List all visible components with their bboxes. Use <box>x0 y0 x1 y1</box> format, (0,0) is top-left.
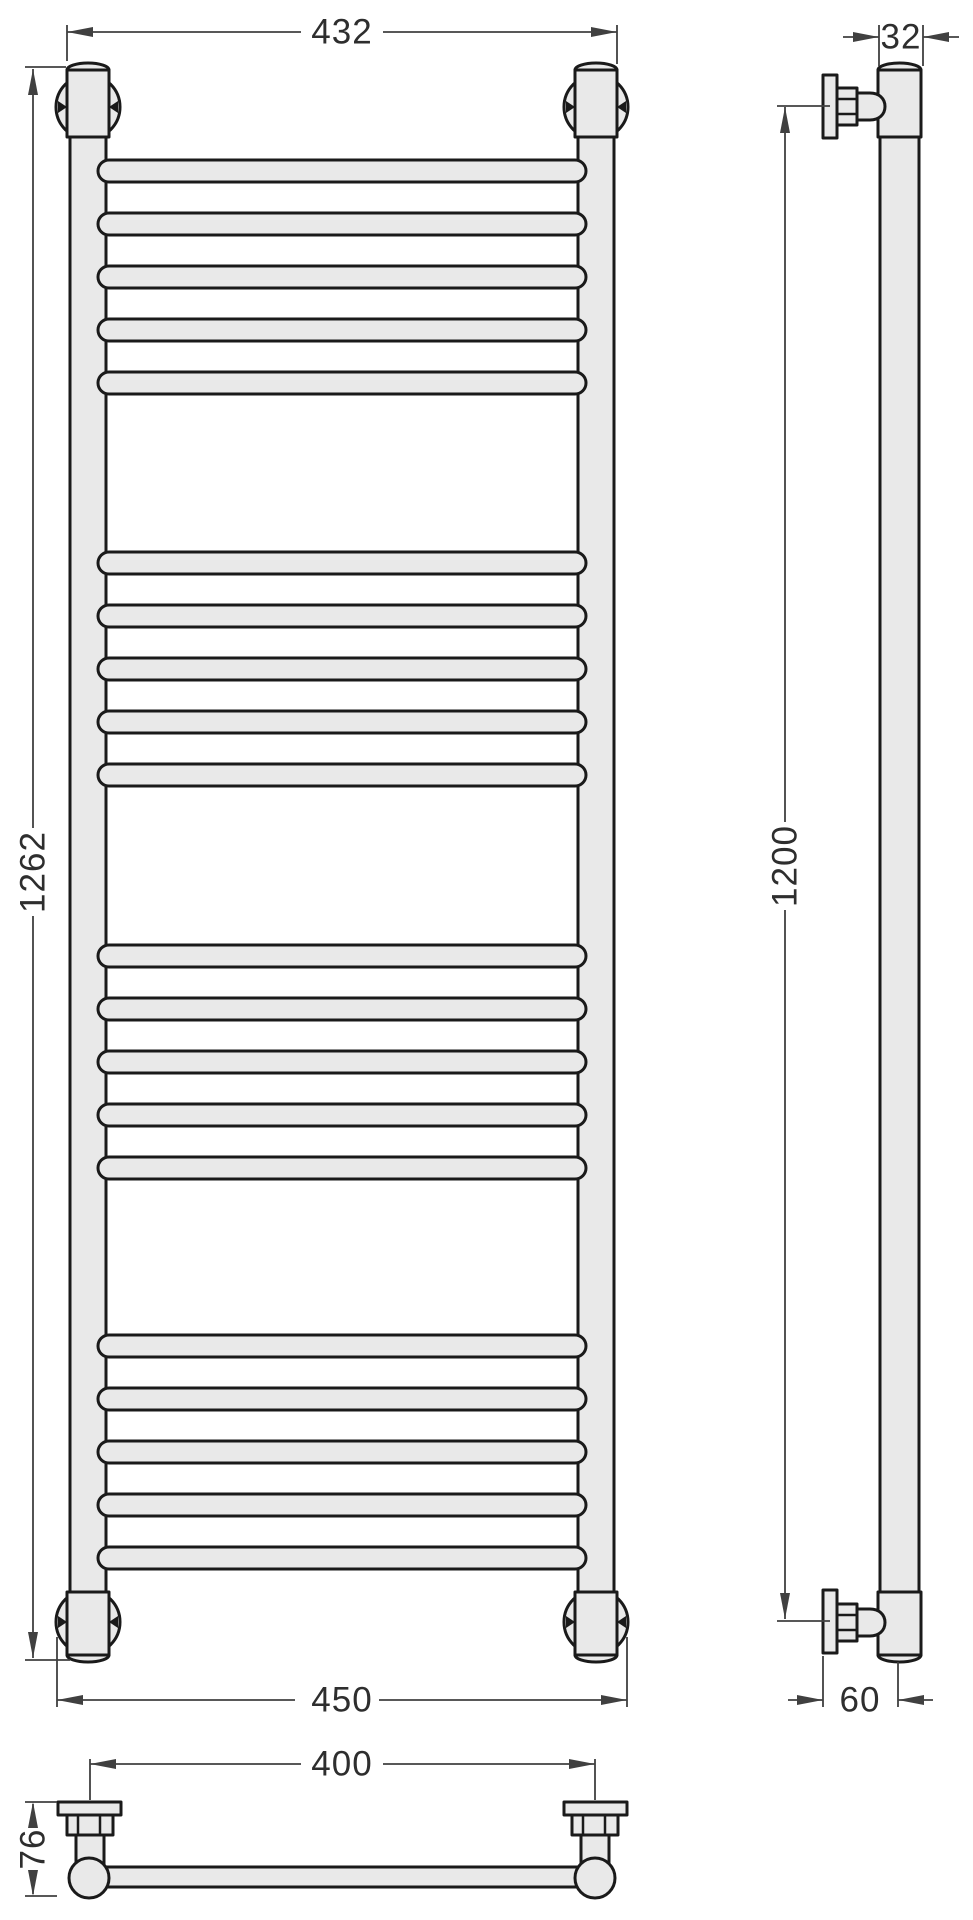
right-rail <box>575 63 617 1662</box>
dim-label-bottom-mount-spacing: 400 <box>311 1745 372 1784</box>
towel-rail-rung <box>98 1157 586 1179</box>
towel-rail-rung <box>98 1494 586 1516</box>
towel-rail-rung <box>98 1104 586 1126</box>
left-rail-top-collar <box>67 70 109 137</box>
arrow-down-icon <box>28 1632 38 1658</box>
left-rail <box>67 63 109 1662</box>
arrow-right-icon <box>601 1695 627 1705</box>
towel-rail-rung <box>98 945 586 967</box>
side-tube <box>878 63 921 1662</box>
arrow-down-icon <box>28 1870 38 1896</box>
towel-rail-rung <box>98 764 586 786</box>
plan-tube-end-left <box>69 1858 109 1898</box>
arrow-left-icon <box>67 27 93 37</box>
front-view <box>56 63 628 1662</box>
arrow-left-icon <box>57 1695 83 1705</box>
towel-rail-rung <box>98 1547 586 1569</box>
towel-rail-rung <box>98 372 586 394</box>
dim-label-front-width-top: 432 <box>311 13 372 52</box>
dim-label-side-mount-height: 1200 <box>766 825 805 907</box>
arrow-left-icon <box>898 1695 924 1705</box>
arrow-up-icon <box>28 1802 38 1828</box>
rung-group-4 <box>98 1335 586 1569</box>
left-rail-tube <box>70 137 106 1592</box>
plan-hex-nut-left <box>67 1815 113 1835</box>
towel-rail-rung <box>98 1051 586 1073</box>
dim-label-front-width-bottom: 450 <box>311 1681 372 1720</box>
plan-tube-end-right <box>575 1858 615 1898</box>
towel-rail-rung <box>98 319 586 341</box>
bracket-hex-nut <box>837 88 857 125</box>
arrow-right-icon <box>591 27 617 37</box>
towel-rail-rung <box>98 213 586 235</box>
dimension-side-mount-height: 1200 <box>766 106 831 1621</box>
arrow-left-icon <box>90 1759 116 1769</box>
towel-rail-rung <box>98 266 586 288</box>
side-view <box>823 63 921 1662</box>
bracket-stem <box>857 1609 885 1636</box>
right-rail-top-collar <box>575 70 617 137</box>
towel-rail-rung <box>98 658 586 680</box>
wall-bracket-bottom <box>823 1590 885 1653</box>
dimension-front-width-top: 432 <box>67 13 617 65</box>
dimension-bottom-depth: 76 <box>14 1802 58 1896</box>
towel-rail-rung <box>98 605 586 627</box>
towel-rail-rung <box>98 1441 586 1463</box>
bracket-stem <box>857 93 885 120</box>
plan-flange-right <box>564 1802 627 1815</box>
towel-rail-rung <box>98 1388 586 1410</box>
dimension-front-width-bottom: 450 <box>57 1637 627 1720</box>
rung-group-2 <box>98 552 586 786</box>
bottom-view <box>58 1802 627 1898</box>
side-tube-body <box>880 137 919 1592</box>
arrow-right-icon <box>797 1695 823 1705</box>
dimension-side-tube-diameter: 32 <box>843 18 959 67</box>
left-rail-bottom-collar <box>67 1592 109 1655</box>
towel-rail-rung <box>98 552 586 574</box>
arrow-up-icon <box>28 69 38 95</box>
rung-group-3 <box>98 945 586 1179</box>
towel-rail-drawing: 432 1262 450 32 <box>0 0 973 1920</box>
towel-rail-rung <box>98 1335 586 1357</box>
arrow-up-icon <box>780 107 790 133</box>
dim-label-bottom-depth: 76 <box>14 1829 53 1870</box>
dimension-front-height: 1262 <box>14 67 71 1660</box>
arrow-right-icon <box>853 32 879 42</box>
wall-bracket-top <box>823 75 885 138</box>
rung-group-1 <box>98 160 586 394</box>
arrow-left-icon <box>923 32 949 42</box>
towel-rail-rung <box>98 711 586 733</box>
arrow-down-icon <box>780 1593 790 1619</box>
technical-drawing-page: 432 1262 450 32 <box>0 0 973 1920</box>
dim-label-front-height: 1262 <box>14 831 53 913</box>
towel-rail-rung <box>98 998 586 1020</box>
dim-label-side-wall-offset: 60 <box>840 1681 881 1720</box>
bracket-hex-nut <box>837 1604 857 1641</box>
plan-crossbar <box>89 1867 595 1887</box>
plan-hex-nut-right <box>572 1815 618 1835</box>
arrow-right-icon <box>569 1759 595 1769</box>
dimension-side-wall-offset: 60 <box>788 1656 933 1720</box>
right-rail-tube <box>578 137 614 1592</box>
dimension-bottom-mount-spacing: 400 <box>90 1745 595 1801</box>
dim-label-side-tube-diameter: 32 <box>881 18 922 57</box>
towel-rail-rung <box>98 160 586 182</box>
plan-flange-left <box>58 1802 121 1815</box>
right-rail-bottom-collar <box>575 1592 617 1655</box>
